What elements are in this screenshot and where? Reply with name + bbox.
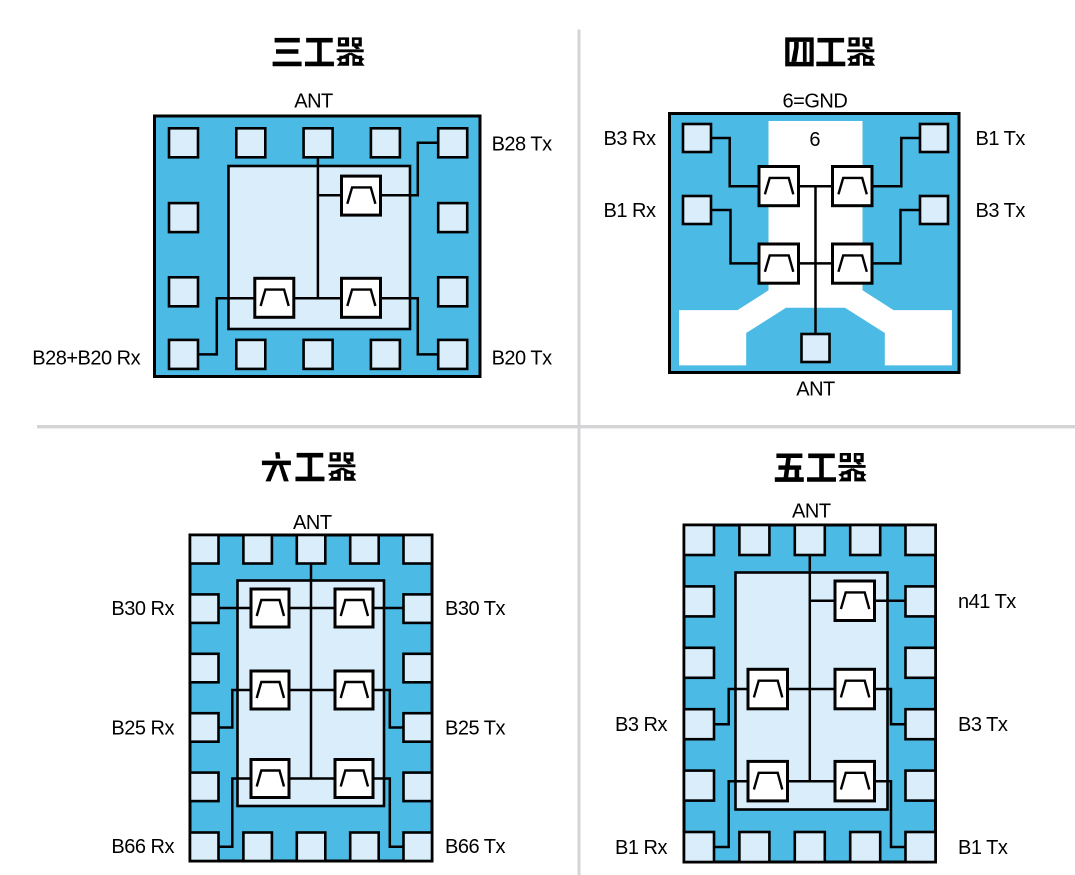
svg-text:B1 Tx: B1 Tx [958, 837, 1008, 859]
svg-text:B25 Tx: B25 Tx [445, 718, 505, 740]
svg-text:B28+B20 Rx: B28+B20 Rx [32, 348, 140, 370]
svg-text:ANT: ANT [294, 91, 333, 113]
svg-text:ANT: ANT [293, 512, 332, 534]
svg-text:n41 Tx: n41 Tx [958, 591, 1016, 613]
svg-text:B1 Rx: B1 Rx [615, 837, 667, 859]
svg-text:B3 Rx: B3 Rx [615, 714, 667, 736]
svg-text:B1 Tx: B1 Tx [976, 128, 1026, 150]
svg-text:B20 Tx: B20 Tx [492, 348, 552, 370]
svg-text:6: 6 [809, 129, 820, 151]
svg-text:B66 Tx: B66 Tx [445, 836, 505, 858]
svg-text:B66 Rx: B66 Rx [111, 836, 174, 858]
svg-text:6=GND: 6=GND [783, 90, 848, 112]
svg-text:B1 Rx: B1 Rx [604, 200, 656, 222]
svg-text:ANT: ANT [796, 379, 835, 401]
svg-text:B30 Rx: B30 Rx [111, 598, 174, 620]
svg-text:B25 Rx: B25 Rx [111, 718, 174, 740]
svg-text:B30 Tx: B30 Tx [445, 598, 505, 620]
svg-text:B3 Rx: B3 Rx [604, 128, 656, 150]
svg-text:B3 Tx: B3 Tx [958, 714, 1008, 736]
svg-text:B28 Tx: B28 Tx [492, 133, 552, 155]
svg-text:B3 Tx: B3 Tx [976, 200, 1026, 222]
svg-text:ANT: ANT [792, 501, 831, 523]
